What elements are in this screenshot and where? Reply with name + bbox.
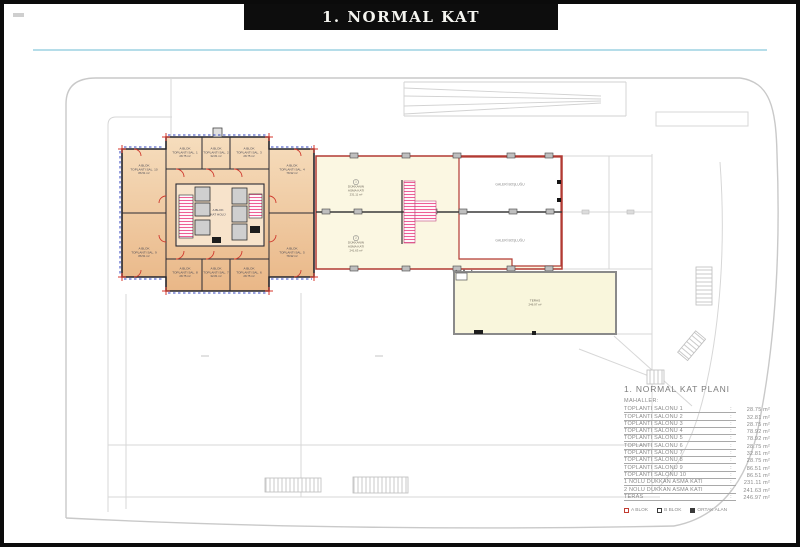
legend-key: A BLOK B BLOK ORTAK ALAN xyxy=(624,508,770,513)
legend-row: TOPLANTI SALONU 3:28.75 m² xyxy=(624,421,770,428)
room-label-2: A BLOKTOPLANTI SAL. 232.81 m² xyxy=(203,147,228,158)
legend-row: TOPLANTI SALONU 8:28.75 m² xyxy=(624,457,770,464)
hall-label: A BLOKKAT HOLÜ xyxy=(210,209,225,217)
legend-row: TERAS:246.97 m² xyxy=(624,494,770,501)
legend-row: TOPLANTI SALONU 4:78.92 m² xyxy=(624,428,770,435)
core-stair-right xyxy=(249,194,262,218)
drawing-sheet: 1. NORMAL KAT A BLOKTOPLANTI SAL. 128.75… xyxy=(0,0,800,547)
gallery-label-bottom: GALERİ BOŞLUĞU xyxy=(495,239,524,242)
mezzanine-number: 1 xyxy=(353,179,359,185)
room-label-9: A BLOKTOPLANTI SAL. 986.51 m² xyxy=(131,247,156,258)
room-label-4: A BLOKTOPLANTI SAL. 478.92 m² xyxy=(279,164,304,175)
core-stair-left xyxy=(179,195,193,238)
room-label-6: A BLOKTOPLANTI SAL. 628.75 m² xyxy=(236,267,261,278)
legend-row: TOPLANTI SALONU 6:28.75 m² xyxy=(624,442,770,449)
room-label-5: A BLOKTOPLANTI SAL. 578.92 m² xyxy=(279,247,304,258)
legend-row: TOPLANTI SALONU 2:32.81 m² xyxy=(624,413,770,420)
legend-row: 2 NOLU DÜKKAN ASMA KATI:241.63 m² xyxy=(624,486,770,493)
room-label-7: A BLOKTOPLANTI SAL. 732.81 m² xyxy=(203,267,228,278)
wing-building xyxy=(316,153,634,279)
key-a-blok-swatch xyxy=(624,508,629,513)
sheet-title: 1. NORMAL KAT xyxy=(244,4,558,30)
room-label-1: A BLOKTOPLANTI SAL. 128.75 m² xyxy=(172,147,197,158)
legend-subtitle: MAHALLER: xyxy=(624,398,770,404)
legend-row: TOPLANTI SALONU 9:86.51 m² xyxy=(624,464,770,471)
plate-mark xyxy=(13,13,24,17)
mezzanine-label-1: 1 DÜKKANINASMA KATI 231.11 m² xyxy=(348,179,364,197)
legend-title: 1. NORMAL KAT PLANI xyxy=(624,384,770,394)
legend-row: 1 NOLU DÜKKAN ASMA KATI:231.11 m² xyxy=(624,479,770,486)
sheet-title-text: 1. NORMAL KAT xyxy=(322,8,480,26)
key-ortak-alan-swatch xyxy=(690,508,695,513)
room-label-3: A BLOKTOPLANTI SAL. 328.75 m² xyxy=(236,147,261,158)
key-b-blok: B BLOK xyxy=(657,508,681,513)
legend-row: TOPLANTI SALONU 7:32.81 m² xyxy=(624,450,770,457)
mezzanine-number: 2 xyxy=(353,235,359,241)
mezzanine-label-2: 2 DÜKKANINASMA KATI 241.63 m² xyxy=(348,235,364,253)
key-a-blok: A BLOK xyxy=(624,508,648,513)
accent-line xyxy=(33,49,767,51)
gallery-label-top: GALERİ BOŞLUĞU xyxy=(495,183,524,186)
legend: 1. NORMAL KAT PLANI MAHALLER: TOPLANTI S… xyxy=(624,384,770,513)
key-b-blok-swatch xyxy=(657,508,662,513)
legend-row: TOPLANTI SALONU 5:78.92 m² xyxy=(624,435,770,442)
legend-row: TOPLANTI SALONU 1:28.75 m² xyxy=(624,406,770,413)
teras-label: TERAS246.97 m² xyxy=(529,299,542,306)
room-label-8: A BLOKTOPLANTI SAL. 828.75 m² xyxy=(172,267,197,278)
ramp-hatch xyxy=(404,82,626,116)
room-label-10: A BLOKTOPLANTI SAL. 1086.51 m² xyxy=(130,164,157,175)
legend-row: TOPLANTI SALONU 10:86.51 m² xyxy=(624,472,770,479)
key-ortak-alan: ORTAK ALAN xyxy=(690,508,727,513)
